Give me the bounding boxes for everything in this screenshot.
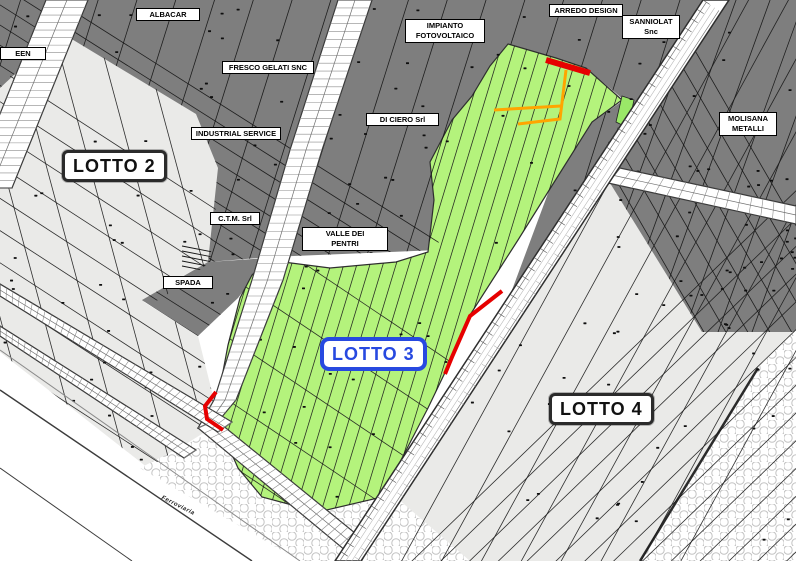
label-di-ciero: DI CIERO Srl [366,113,439,126]
label-fresco-gelati: FRESCO GELATI SNC [222,61,314,74]
label-green: EEN [0,47,46,60]
label-molisana-metalli: MOLISANA METALLI [719,112,777,136]
label-sanniolat: SANNIOLAT Snc [622,15,680,39]
lotto-2-label: LOTTO 2 [62,150,167,182]
cadastral-map-view: EEN ALBACAR FRESCO GELATI SNC INDUSTRIAL… [0,0,796,561]
label-ctm: C.T.M. Srl [210,212,260,225]
label-impianto-fotovoltaico: IMPIANTO FOTOVOLTAICO [405,19,485,43]
lotto-3-label: LOTTO 3 [321,338,426,370]
label-arredo-design: ARREDO DESIGN [549,4,623,17]
label-albacar: ALBACAR [136,8,200,21]
label-valle-dei-pentri: VALLE DEI PENTRI [302,227,388,251]
label-industrial-service: INDUSTRIAL SERVICE [191,127,281,140]
cadastral-map-canvas [0,0,796,561]
lotto-4-label: LOTTO 4 [549,393,654,425]
label-spada: SPADA [163,276,213,289]
